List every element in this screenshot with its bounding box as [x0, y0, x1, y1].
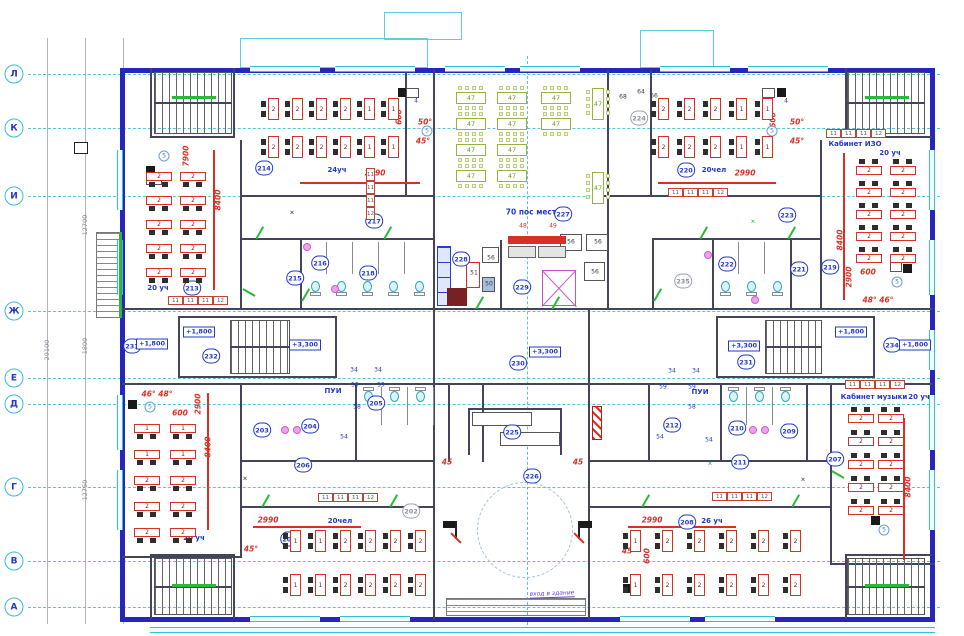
chair [703, 111, 708, 117]
chair [906, 181, 912, 186]
toilet-tank [414, 292, 425, 296]
interior-wall [150, 136, 235, 138]
red-dimension-text: 45 [573, 458, 583, 467]
chair [623, 577, 628, 583]
dimension-line [85, 38, 86, 624]
chair [864, 407, 870, 412]
dining-chair [520, 158, 524, 162]
item-tag: 49 [549, 223, 557, 230]
dining-chair [499, 164, 503, 168]
axis-letter-Д: Д [5, 395, 24, 414]
room-circle-231: 231 [737, 355, 755, 370]
side-desk [890, 262, 902, 272]
serving-equipment [508, 246, 536, 258]
interior-wall [716, 316, 875, 318]
flag [443, 521, 455, 528]
chair [285, 111, 290, 117]
dining-chair [520, 164, 524, 168]
toilet-bowl [390, 391, 399, 402]
chair [285, 139, 290, 145]
chair [333, 577, 338, 583]
chair [677, 111, 682, 117]
item-tag: 59 [659, 384, 667, 391]
chair [655, 587, 660, 593]
item-tag: 56 [591, 269, 599, 276]
cabinet-box: 11 [183, 296, 198, 305]
chair [285, 101, 290, 107]
desk-201: 2 [134, 528, 160, 537]
chair [173, 434, 179, 439]
item-tag: ✕ [800, 477, 805, 484]
washbasin [704, 251, 712, 259]
desk-201: 1 [170, 424, 196, 433]
dining-chair [586, 104, 590, 108]
interior-wall [233, 554, 235, 619]
chair [851, 476, 857, 481]
chair [150, 434, 156, 439]
stair-landing-mark [172, 96, 216, 99]
desk-219: 2 [856, 188, 882, 197]
dimension-text: 1800 [81, 338, 89, 355]
dining-chair [506, 132, 510, 136]
dining-chair [543, 86, 547, 90]
room-label: 20 уч [879, 149, 901, 157]
dimension-text: 12750 [81, 480, 89, 501]
dining-chair [472, 112, 476, 116]
dining-chair [479, 86, 483, 90]
item-tag: 4 [414, 98, 418, 105]
dining-chair [557, 132, 561, 136]
dining-chair [479, 132, 483, 136]
red-dimension-text: 48° 46° [863, 296, 894, 305]
desk-208: 1 [630, 530, 641, 552]
item-tag: ✕ [242, 476, 247, 483]
stair-landing-mark [865, 584, 909, 587]
circled-item-5: 5 [767, 126, 778, 137]
chair [183, 254, 189, 259]
desk-213: 2 [146, 220, 172, 229]
chair [383, 543, 388, 549]
interior-wall [240, 460, 435, 462]
red-dimension-text: 2900 [194, 394, 203, 415]
room-circle-212: 212 [663, 418, 681, 433]
washbasin [751, 296, 759, 304]
red-dimension-text: 45° [244, 545, 258, 554]
chair [881, 499, 887, 504]
door-swing [301, 288, 309, 301]
dining-chair [513, 86, 517, 90]
elevation-mark: +3,300 [289, 340, 321, 351]
room-label: 70 пос мест [506, 208, 556, 217]
room-circle-221: 221 [790, 262, 808, 277]
dining-chair [472, 158, 476, 162]
desk-208: 2 [662, 530, 673, 552]
cabinet-box: 11 [826, 129, 841, 138]
desk-208: 2 [662, 574, 673, 596]
chair [186, 512, 192, 517]
serving-counter [508, 236, 566, 244]
interior-wall [830, 385, 832, 565]
dining-table: 47 [497, 144, 527, 156]
chair [137, 486, 143, 491]
chair [149, 206, 155, 211]
dining-chair [458, 106, 462, 110]
chair [703, 149, 708, 155]
dining-chair [499, 138, 503, 142]
cabinet-box: 11 [856, 129, 871, 138]
desk-207: 2 [848, 483, 874, 492]
chair [851, 407, 857, 412]
chair [893, 159, 899, 164]
window-strip [660, 66, 730, 72]
item-tag: 51 [470, 270, 478, 277]
interior-wall [240, 385, 242, 558]
chair [703, 139, 708, 145]
dining-chair [513, 158, 517, 162]
desk-219: 2 [890, 232, 916, 241]
dining-table: 47 [541, 118, 571, 130]
axis-line-Д [28, 404, 940, 405]
chair [149, 230, 155, 235]
desk-201: 1 [134, 424, 160, 433]
window-strip [445, 66, 505, 72]
dining-chair [564, 86, 568, 90]
item-tag: ✕ [750, 219, 755, 226]
dining-chair [606, 195, 610, 199]
dining-chair [586, 188, 590, 192]
chair [383, 577, 388, 583]
toilet-bowl [729, 391, 738, 402]
roof-outline [640, 30, 714, 68]
dining-chair [506, 138, 510, 142]
chair [381, 139, 386, 145]
desk-220: 2 [684, 136, 695, 158]
window-strip [620, 616, 690, 622]
chair [408, 543, 413, 549]
chair [309, 139, 314, 145]
chair [893, 181, 899, 186]
dining-chair [520, 86, 524, 90]
stair-landing-mark [172, 584, 216, 587]
cabinet-box: 11 [742, 492, 757, 501]
chair [357, 111, 362, 117]
desk-220: 2 [684, 98, 695, 120]
red-dimension-text: 600 [172, 409, 188, 418]
window-strip [705, 616, 775, 622]
item-tag: 48 [519, 223, 527, 230]
dining-chair [472, 86, 476, 90]
chair [655, 577, 660, 583]
interior-wall [468, 408, 562, 410]
window-strip [335, 66, 415, 72]
chair [881, 453, 887, 458]
cabinet-box: 11 [198, 296, 213, 305]
desk-207: 2 [848, 437, 874, 446]
desk-207: 2 [878, 414, 904, 423]
chair [893, 225, 899, 230]
chair [651, 101, 656, 107]
washbasin [281, 426, 289, 434]
toilet-tank [363, 387, 374, 391]
chair [894, 499, 900, 504]
room-label: Кабинет ИЗО [828, 140, 881, 148]
room-label: 20чел [702, 166, 726, 174]
dining-chair [586, 90, 590, 94]
dining-chair [472, 184, 476, 188]
dimension-text: 12700 [81, 215, 89, 236]
red-dimension-text: 600 [860, 268, 876, 277]
item-tag: 64 [637, 89, 645, 96]
dining-table: 47 [456, 144, 486, 156]
chair [755, 149, 760, 155]
dining-chair [465, 106, 469, 110]
desk-201: 1 [170, 450, 196, 459]
interior-wall [122, 308, 933, 310]
entrance-note: вход в здание [529, 589, 574, 599]
circled-item-5: 5 [422, 126, 433, 137]
dining-chair [586, 111, 590, 115]
chair [186, 486, 192, 491]
chair [150, 512, 156, 517]
desk-213: 2 [180, 172, 206, 181]
dining-chair [550, 132, 554, 136]
room-circle-216: 216 [311, 256, 329, 271]
chair [894, 476, 900, 481]
chair [872, 203, 878, 208]
roof-outline [240, 38, 428, 68]
chair [677, 101, 682, 107]
axis-letter-Е: Е [5, 369, 24, 388]
chair [864, 476, 870, 481]
axis-letter-К: К [5, 119, 24, 138]
chair [408, 587, 413, 593]
interior-wall [652, 238, 822, 240]
hatched-pier [592, 406, 602, 440]
interior-wall [468, 408, 470, 455]
interior-wall [588, 506, 832, 508]
desk-214: 2 [316, 98, 327, 120]
item-tag: 59 [351, 382, 359, 389]
dining-chair [479, 138, 483, 142]
dining-chair [479, 112, 483, 116]
item-tag: 34 [350, 367, 358, 374]
dining-chair [520, 106, 524, 110]
room-circle-219: 219 [821, 260, 839, 275]
chair [783, 577, 788, 583]
chair [751, 587, 756, 593]
chair [150, 538, 156, 543]
chair [333, 139, 338, 145]
desk-214: 1 [388, 136, 399, 158]
desk-213: 2 [180, 268, 206, 277]
dining-chair [543, 106, 547, 110]
dining-chair [506, 158, 510, 162]
room-circle-224: 224 [630, 111, 648, 126]
dining-chair [520, 184, 524, 188]
elevation-mark: +3,300 [728, 341, 760, 352]
desk-219: 2 [890, 210, 916, 219]
interior-wall [806, 385, 808, 462]
desk-208: 2 [694, 530, 705, 552]
dining-table: 47 [497, 92, 527, 104]
dining-chair [564, 132, 568, 136]
elevation-mark: +1,800 [899, 340, 931, 351]
chair [183, 230, 189, 235]
chair [173, 538, 179, 543]
toilet-tank [336, 292, 347, 296]
desk-213: 2 [180, 244, 206, 253]
cabinet-box: 11 [168, 296, 183, 305]
room-circle-214: 214 [255, 161, 273, 176]
interior-wall [122, 383, 933, 385]
cabinet-box: 12 [213, 296, 228, 305]
cabinet-box: 11 [318, 493, 333, 502]
toilet-bowl [415, 281, 424, 292]
chair [358, 577, 363, 583]
chair [906, 247, 912, 252]
red-dimension-text: 50° [790, 118, 804, 127]
dining-chair [520, 132, 524, 136]
chair [137, 460, 143, 465]
desk-202: 2 [340, 530, 351, 552]
outer-wall [120, 617, 935, 622]
desk-202: 2 [390, 530, 401, 552]
chair [173, 460, 179, 465]
room-circle-220: 220 [677, 163, 695, 178]
cabinet-box: 11 [860, 380, 875, 389]
chair [655, 533, 660, 539]
toilet-tank [388, 292, 399, 296]
desk-220: 1 [762, 98, 773, 120]
dining-chair [465, 138, 469, 142]
desk-220: 2 [658, 98, 669, 120]
chair [333, 149, 338, 155]
desk-213: 2 [180, 196, 206, 205]
axis-letter-Л: Л [5, 65, 24, 84]
desk-201: 2 [170, 476, 196, 485]
dining-chair [543, 112, 547, 116]
chair [150, 486, 156, 491]
room-circle-204: 204 [301, 419, 319, 434]
cabinet-box: 11 [845, 380, 860, 389]
dining-table: 47 [456, 118, 486, 130]
washbasin [331, 285, 339, 293]
window-strip [748, 66, 828, 72]
window-strip [929, 395, 935, 450]
chair [751, 577, 756, 583]
window-strip [250, 66, 320, 72]
desk-202: 1 [315, 530, 326, 552]
cabinet-box: 12 [871, 129, 886, 138]
desk-219: 2 [890, 188, 916, 197]
chair [755, 101, 760, 107]
dining-chair [479, 184, 483, 188]
window-strip [117, 395, 123, 450]
axis-letter-Ж: Ж [5, 302, 24, 321]
axis-letter-Г: Г [5, 478, 24, 497]
chair [623, 587, 628, 593]
desk-214: 2 [340, 98, 351, 120]
chair [687, 543, 692, 549]
item-tag: ✕ [707, 461, 712, 468]
chair [859, 181, 865, 186]
chair [719, 543, 724, 549]
desk-202: 2 [415, 530, 426, 552]
room-label: 24уч [327, 166, 346, 174]
stair-divider [765, 346, 822, 348]
interior-wall [178, 316, 180, 378]
elevation-mark: +3,300 [529, 347, 561, 358]
floor-plan: ЛКИЖЕДГВА2910012700180012750303036606890… [0, 0, 964, 636]
toilet-tank [720, 292, 731, 296]
dining-chair [506, 164, 510, 168]
room-circle-232: 232 [202, 349, 220, 364]
cabinet-box: 12 [713, 188, 728, 197]
desk-214: 2 [340, 136, 351, 158]
chair [162, 206, 168, 211]
desk-201: 2 [134, 476, 160, 485]
desk-202: 2 [390, 574, 401, 596]
dining-chair [550, 86, 554, 90]
stair-landing-mark [119, 232, 122, 318]
teacher-desk [777, 88, 786, 97]
chair [358, 533, 363, 539]
cabinet-box: 11 [698, 188, 713, 197]
stall-partition [378, 242, 379, 274]
dining-chair [606, 97, 610, 101]
teacher-desk [128, 400, 137, 409]
chair [183, 278, 189, 283]
chair [859, 159, 865, 164]
interior-wall [240, 140, 242, 310]
desk-208: 1 [630, 574, 641, 596]
toilet-bowl [773, 281, 782, 292]
desk-207: 2 [878, 460, 904, 469]
desk-219: 2 [890, 166, 916, 175]
item-tag: 34 [668, 368, 676, 375]
desk-202: 2 [340, 574, 351, 596]
desk-202: 1 [290, 530, 301, 552]
stall-partition [746, 387, 747, 425]
chair [162, 278, 168, 283]
dining-table: 47 [592, 88, 604, 120]
desk-220: 2 [710, 98, 721, 120]
cabinet-box: 11 [348, 493, 363, 502]
chair [755, 111, 760, 117]
chair [137, 538, 143, 543]
interior-wall [873, 316, 875, 378]
item-tag: 54 [656, 434, 664, 441]
dimension-line [47, 38, 48, 624]
desk-207: 2 [848, 506, 874, 515]
desk-201: 2 [170, 502, 196, 511]
chair [186, 434, 192, 439]
desk-202: 1 [290, 574, 301, 596]
cabinet-box: 12 [366, 207, 375, 220]
chair [881, 430, 887, 435]
red-dim-line [207, 393, 209, 530]
cabinet-box: 11 [668, 188, 683, 197]
side-desk [406, 88, 419, 98]
chair [655, 543, 660, 549]
dining-chair [499, 184, 503, 188]
red-dimension-text: 2900 [845, 267, 854, 288]
dining-chair [606, 181, 610, 185]
dining-chair [606, 174, 610, 178]
washbasin [749, 426, 757, 434]
interior-wall [240, 238, 435, 240]
toilet-bowl [721, 281, 730, 292]
